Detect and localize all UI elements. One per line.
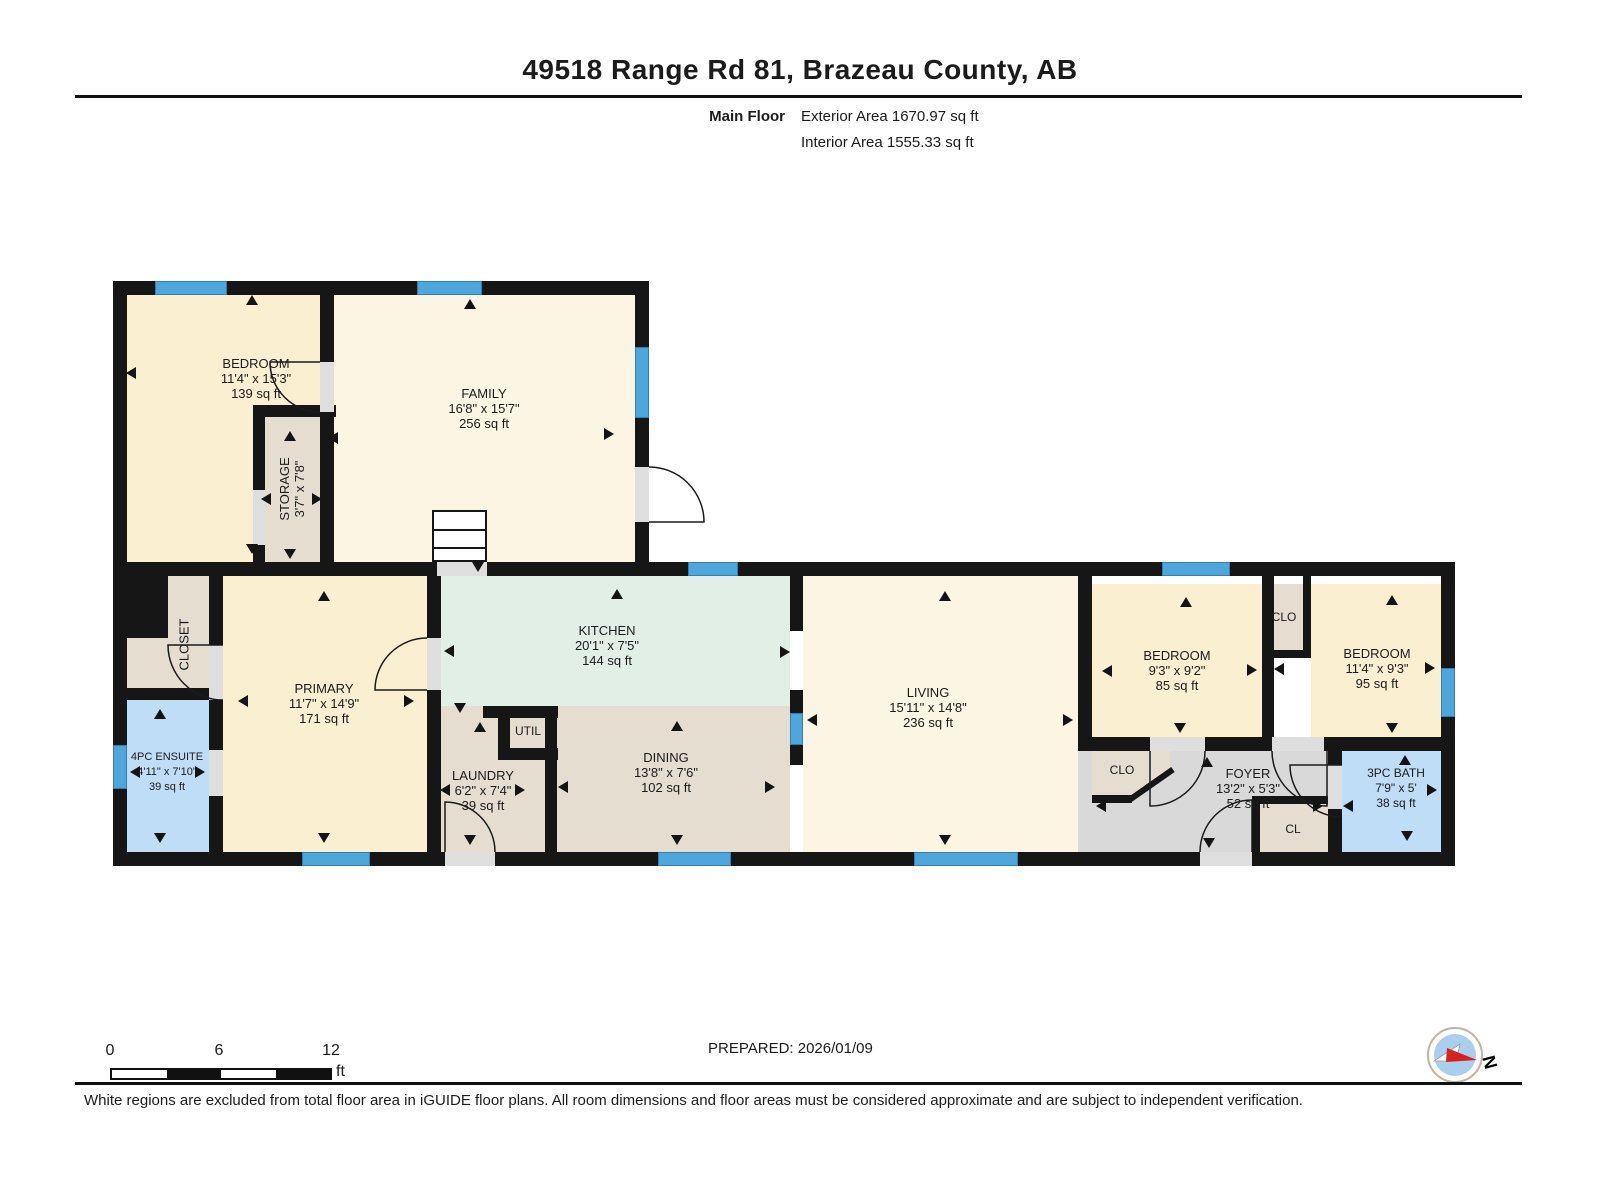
dimension-arrow <box>454 703 466 713</box>
room-label-living: LIVING15'11" x 14'8"236 sq ft <box>818 685 1038 730</box>
wall <box>790 690 803 715</box>
door-arc <box>649 467 704 522</box>
room-label-line: BEDROOM <box>1067 648 1287 663</box>
room-label-line: 39 sq ft <box>373 798 593 813</box>
room-label-kitchen: KITCHEN20'1" x 7'5"144 sq ft <box>497 623 717 668</box>
room-label-line: 16'8" x 15'7" <box>374 401 594 416</box>
door-gap <box>1200 852 1252 866</box>
scale-segment <box>167 1070 222 1078</box>
room-label-line: 139 sq ft <box>146 386 366 401</box>
room-label-line: 7'9" x 5' <box>1286 781 1506 796</box>
window <box>914 852 1018 866</box>
dimension-arrow <box>318 591 330 601</box>
room-label-line: UTIL <box>418 724 638 739</box>
dimension-arrow <box>671 835 683 845</box>
wall <box>483 706 498 718</box>
room-label-ensuite: 4PC ENSUITE4'11" x 7'10"39 sq ft <box>57 750 277 795</box>
dimension-arrow <box>1174 723 1186 733</box>
dimension-arrow <box>671 721 683 731</box>
room-label-line: FAMILY <box>374 386 594 401</box>
window <box>302 852 370 866</box>
room-label-line: 11'7" x 14'9" <box>214 696 434 711</box>
room-label-storage: STORAGE3'7" x 7'8" <box>277 379 307 599</box>
dimension-arrow <box>604 428 614 440</box>
room-label-util: UTIL <box>418 724 638 739</box>
dimension-arrow <box>318 833 330 843</box>
dimension-arrow <box>1399 755 1411 765</box>
dimension-arrow <box>261 493 271 505</box>
room-label-family: FAMILY16'8" x 15'7"256 sq ft <box>374 386 594 431</box>
room-label-line: 85 sq ft <box>1067 678 1287 693</box>
disclaimer-text: White regions are excluded from total fl… <box>84 1092 1534 1109</box>
room-label-line: 11'4" x 15'3" <box>146 371 366 386</box>
window <box>417 281 482 295</box>
room-label-line: LIVING <box>818 685 1038 700</box>
wall <box>1078 737 1455 751</box>
room-label-line: BEDROOM <box>1267 646 1487 661</box>
room-label-bath: 3PC BATH7'9" x 5'38 sq ft <box>1286 766 1506 811</box>
scale-unit: ft <box>336 1063 345 1081</box>
room-label-line: 171 sq ft <box>214 711 434 726</box>
window <box>155 281 227 295</box>
floorplan-drawing: BEDROOM11'4" x 15'3"139 sq ftFAMILY16'8"… <box>0 0 1600 1200</box>
stairs-icon <box>432 510 487 562</box>
floorplan-page: 49518 Range Rd 81, Brazeau County, AB Ma… <box>0 0 1600 1200</box>
room-label-line: 102 sq ft <box>556 780 776 795</box>
dimension-arrow <box>312 493 322 505</box>
wall <box>113 562 1455 576</box>
room-label-cl: CL <box>1183 822 1403 837</box>
room-label-bedroom-r1: BEDROOM9'3" x 9'2"85 sq ft <box>1067 648 1287 693</box>
dimension-arrow <box>1203 838 1215 848</box>
dimension-arrow <box>154 833 166 843</box>
dimension-arrow <box>464 299 476 309</box>
dimension-arrow <box>1096 800 1106 812</box>
room-label-line: 3'7" x 7'8" <box>292 379 307 599</box>
room-label-line: CL <box>1183 822 1403 837</box>
room-label-line: 9'3" x 9'2" <box>1067 663 1287 678</box>
dimension-arrow <box>1063 714 1073 726</box>
wall <box>320 405 334 576</box>
room-label-line: 20'1" x 7'5" <box>497 638 717 653</box>
door-gap <box>635 467 649 522</box>
room-label-line: 144 sq ft <box>497 653 717 668</box>
room-label-line: 13'8" x 7'6" <box>556 765 776 780</box>
dimension-arrow <box>1180 597 1192 607</box>
room-label-line: BEDROOM <box>146 356 366 371</box>
window <box>635 347 649 418</box>
room-label-line: 236 sq ft <box>818 715 1038 730</box>
room-label-line: 4'11" x 7'10" <box>57 765 277 780</box>
wall <box>790 745 803 765</box>
room-label-primary: PRIMARY11'7" x 14'9"171 sq ft <box>214 681 434 726</box>
room-label-line: 15'11" x 14'8" <box>818 700 1038 715</box>
room-label-bedroom-r2: BEDROOM11'4" x 9'3"95 sq ft <box>1267 646 1487 691</box>
room-label-closet: CLOSET <box>177 535 192 755</box>
dimension-arrow <box>939 835 951 845</box>
room-label-line: CLOSET <box>177 535 192 755</box>
stair-tread <box>434 529 485 531</box>
stair-tread <box>434 547 485 549</box>
room-label-dining: DINING13'8" x 7'6"102 sq ft <box>556 750 776 795</box>
dimension-arrow <box>611 589 623 599</box>
room-label-clo-1: CLO <box>1174 610 1394 625</box>
room-label-line: PRIMARY <box>214 681 434 696</box>
room-label-line: DINING <box>556 750 776 765</box>
door-gap <box>1150 737 1205 751</box>
room-label-line: 38 sq ft <box>1286 796 1506 811</box>
room-label-line: 39 sq ft <box>57 780 277 795</box>
dimension-arrow <box>1386 723 1398 733</box>
door-gap <box>445 852 495 866</box>
wall <box>635 281 649 576</box>
dimension-arrow <box>807 714 817 726</box>
dimension-arrow <box>472 562 484 572</box>
scale-segment <box>112 1070 167 1078</box>
room-label-line: 11'4" x 9'3" <box>1267 661 1487 676</box>
prepared-date: PREPARED: 2026/01/09 <box>708 1040 873 1057</box>
wall <box>113 281 127 576</box>
dimension-arrow <box>780 646 790 658</box>
wall <box>113 688 223 700</box>
scale-label-6: 6 <box>199 1042 239 1060</box>
door-gap <box>1272 737 1324 751</box>
room-label-bedroom-tl: BEDROOM11'4" x 15'3"139 sq ft <box>146 356 366 401</box>
window <box>658 852 731 866</box>
footer-rule <box>75 1082 1522 1085</box>
scale-label-12: 12 <box>311 1042 351 1060</box>
wall <box>113 576 168 638</box>
scale-segment <box>221 1070 276 1078</box>
dimension-arrow <box>154 709 166 719</box>
scale-bar-strip <box>110 1068 332 1080</box>
dimension-arrow <box>1386 595 1398 605</box>
room-label-line: 256 sq ft <box>374 416 594 431</box>
dimension-arrow <box>246 544 258 554</box>
dimension-arrow <box>444 645 454 657</box>
room-label-line: KITCHEN <box>497 623 717 638</box>
scale-segment <box>276 1070 331 1078</box>
wall <box>790 576 803 631</box>
room-label-line: 95 sq ft <box>1267 676 1487 691</box>
window <box>688 562 738 576</box>
scale-label-0: 0 <box>90 1042 130 1060</box>
dimension-arrow <box>246 295 258 305</box>
room-label-line: 3PC BATH <box>1286 766 1506 781</box>
window <box>790 713 803 745</box>
window <box>1162 562 1230 576</box>
room-label-line: CLO <box>1174 610 1394 625</box>
dimension-arrow <box>939 591 951 601</box>
dimension-arrow <box>328 432 338 444</box>
room-label-line: STORAGE <box>277 379 292 599</box>
room-label-line: 4PC ENSUITE <box>57 750 277 765</box>
dimension-arrow <box>126 367 136 379</box>
dimension-arrow <box>464 835 476 845</box>
